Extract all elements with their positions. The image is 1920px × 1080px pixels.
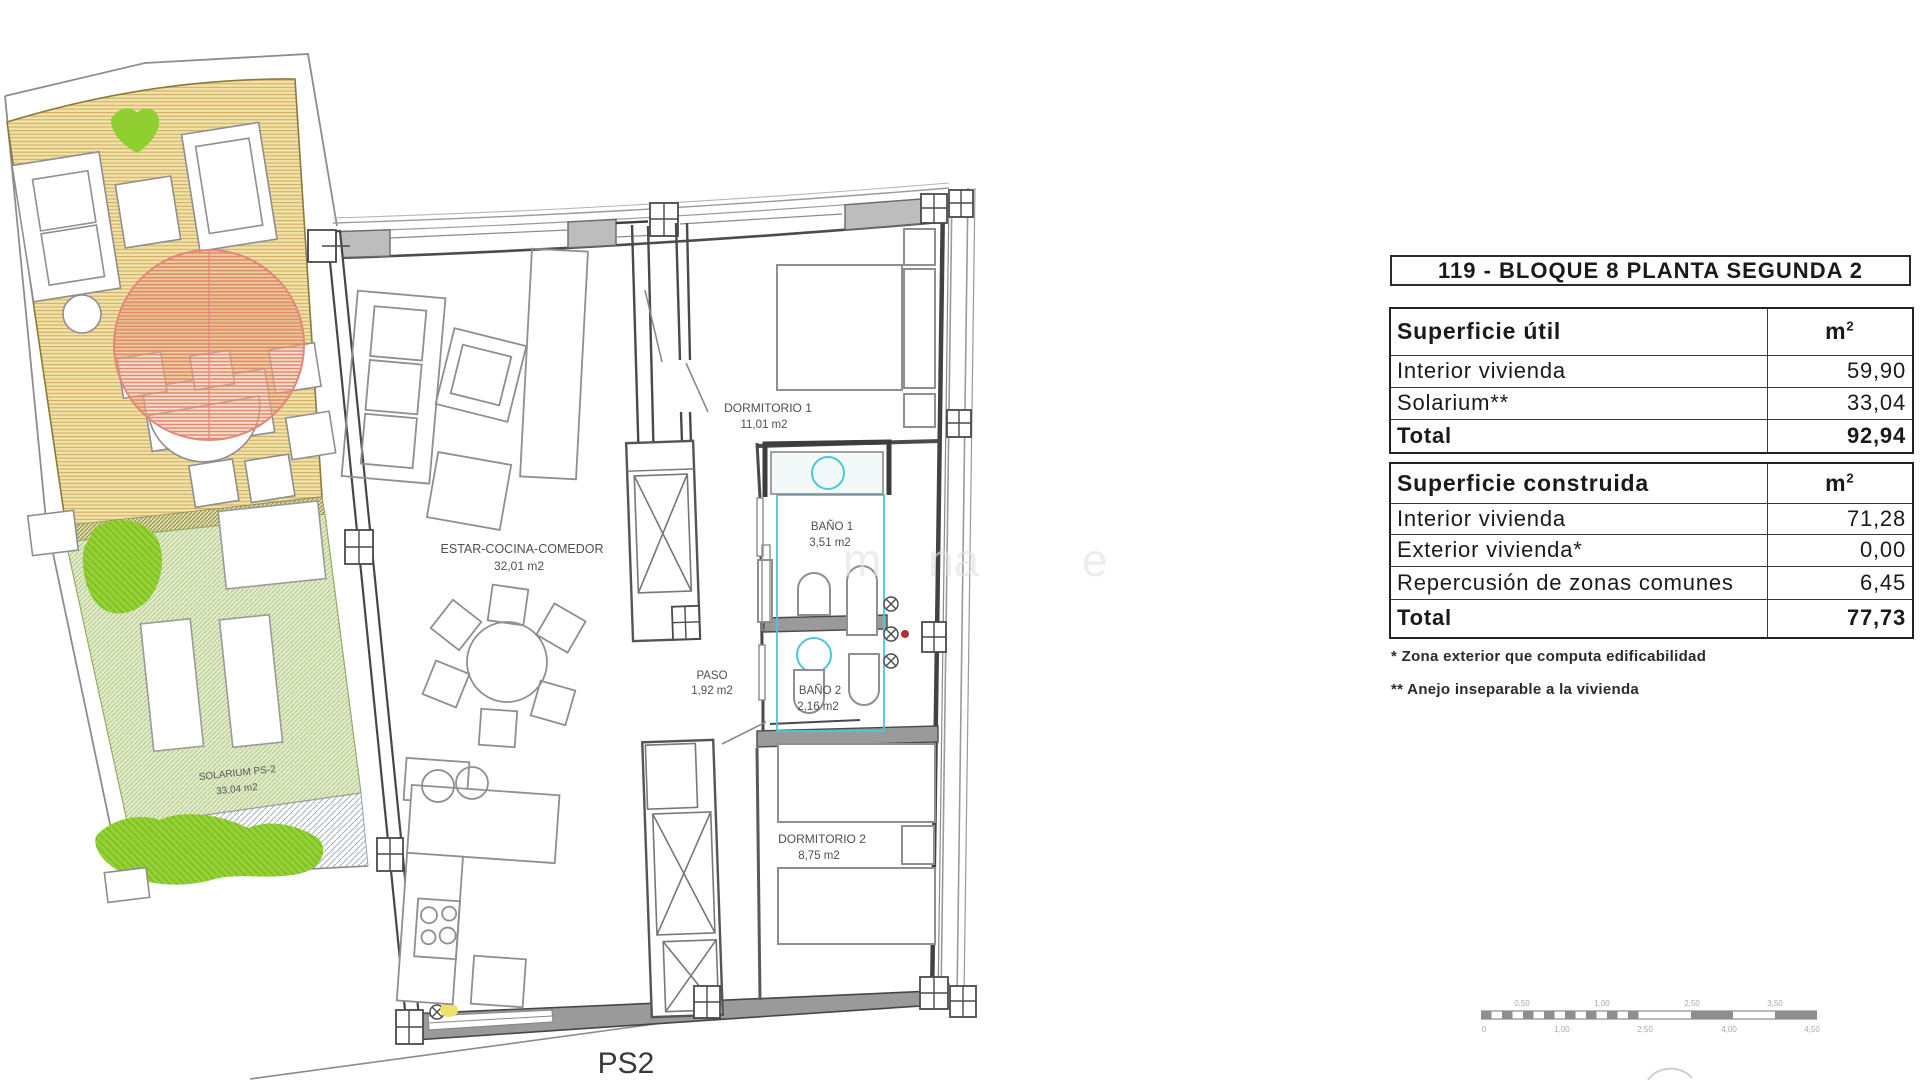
- svg-text:4,00: 4,00: [1721, 1025, 1737, 1034]
- svg-text:na: na: [928, 534, 980, 586]
- svg-text:1,00: 1,00: [1594, 999, 1610, 1008]
- svg-text:3,50: 3,50: [1767, 999, 1783, 1008]
- svg-text:DORMITORIO 2: DORMITORIO 2: [778, 832, 866, 846]
- svg-text:1,00: 1,00: [1554, 1025, 1570, 1034]
- svg-text:0: 0: [1482, 1025, 1487, 1034]
- svg-text:11,01 m2: 11,01 m2: [740, 419, 787, 431]
- svg-text:m: m: [843, 534, 881, 586]
- svg-text:4,50: 4,50: [1804, 1025, 1820, 1034]
- svg-text:2,16 m2: 2,16 m2: [797, 701, 839, 713]
- svg-text:BAÑO 2: BAÑO 2: [799, 684, 841, 697]
- svg-text:0,50: 0,50: [1514, 999, 1530, 1008]
- svg-text:e: e: [1082, 534, 1108, 586]
- svg-text:DORMITORIO 1: DORMITORIO 1: [724, 401, 812, 415]
- svg-text:2,50: 2,50: [1684, 999, 1700, 1008]
- svg-text:8,75 m2: 8,75 m2: [798, 850, 840, 862]
- svg-text:PS2: PS2: [598, 1047, 655, 1080]
- svg-text:2,50: 2,50: [1637, 1025, 1653, 1034]
- svg-text:BAÑO 1: BAÑO 1: [811, 520, 853, 533]
- svg-text:32,01 m2: 32,01 m2: [494, 559, 544, 573]
- svg-text:1,92 m2: 1,92 m2: [691, 685, 733, 697]
- svg-text:PASO: PASO: [696, 670, 727, 682]
- svg-text:ESTAR-COCINA-COMEDOR: ESTAR-COCINA-COMEDOR: [441, 542, 604, 556]
